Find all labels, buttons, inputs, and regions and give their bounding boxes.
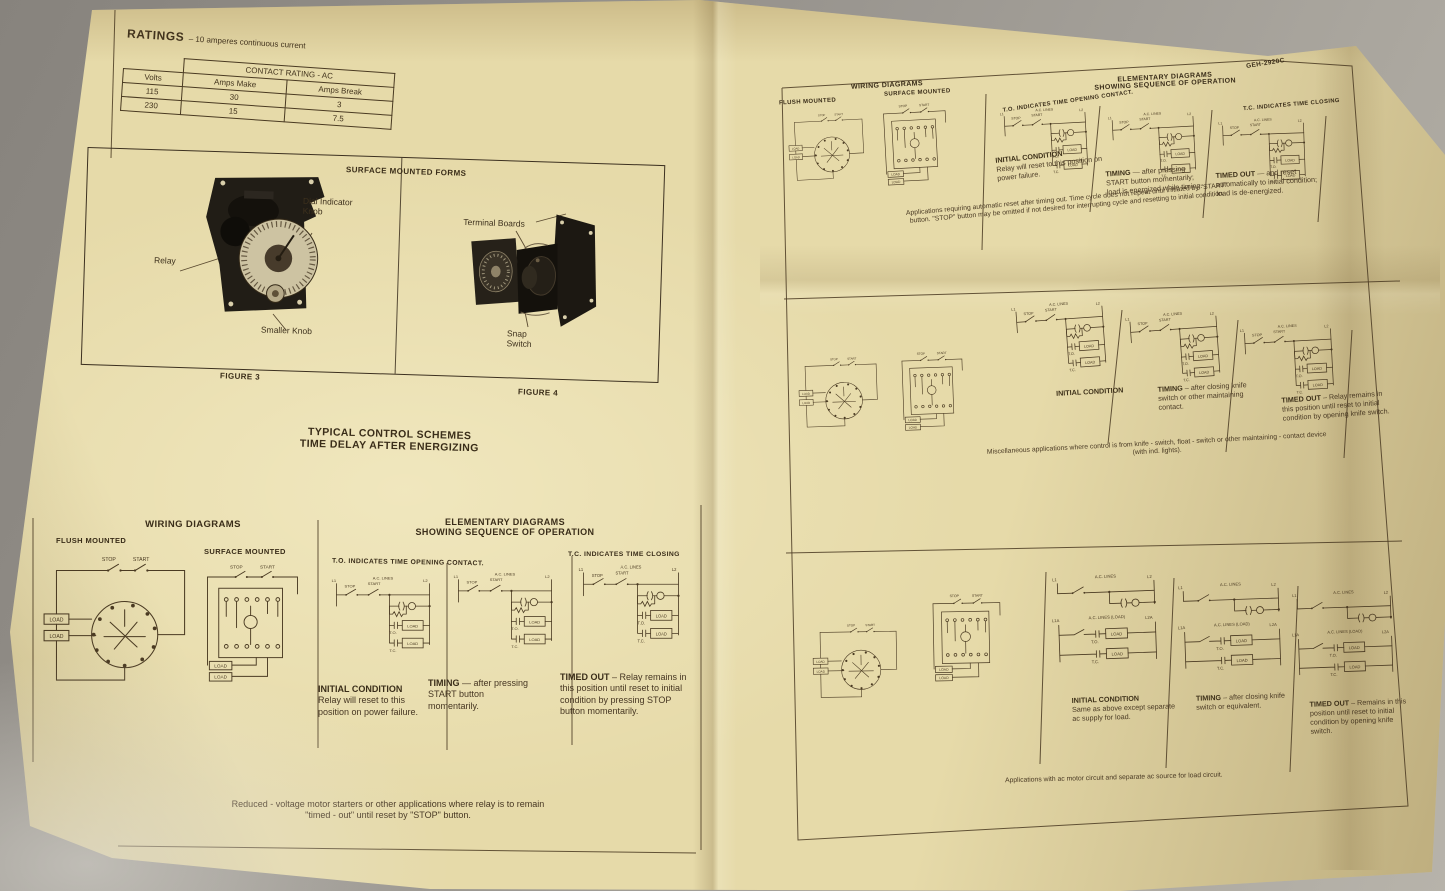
diagram-label-l2: L2	[1187, 112, 1191, 116]
diagram-label-load: LOAD	[817, 670, 826, 674]
instruction-sheet-paper: RATINGS – 10 amperes continuous current …	[0, 0, 1445, 891]
diagram-label-stop: STOP	[1137, 321, 1148, 326]
diagram-label-to: T.O.	[1330, 653, 1338, 658]
diagram-label-stop: STOP	[344, 584, 355, 589]
diagram-label-l2: L2	[423, 578, 428, 583]
wiring-diagram-flush: STOP START LOAD LOAD	[42, 554, 197, 690]
diagram-label-l2: L2	[1271, 582, 1276, 587]
diagram-label-stop: STOP	[917, 352, 926, 356]
figure4-snap-switch-label: Snap Switch	[506, 329, 553, 350]
diagram-label-load: LOAD	[792, 146, 800, 150]
diagram-label-ac-lines-load: A.C. LINES (LOAD)	[1214, 621, 1251, 627]
s3-wiring-diagram-flush: STOP START LOAD LOAD	[811, 621, 904, 704]
diagram-label-load: LOAD	[1112, 651, 1123, 656]
s3-timing-block: TIMING – after closing knife switch or e…	[1196, 690, 1299, 712]
wiring-diagram-surface-svg: STOP START LOAD LOAD	[927, 591, 1007, 684]
diagram-label-start: START	[490, 577, 503, 582]
diagram-label-load: LOAD	[1198, 354, 1209, 359]
diagram-label-load: LOAD	[1285, 158, 1295, 162]
s2-wiring-diagram-surface: STOP START LOAD LOAD	[897, 349, 970, 434]
diagram-label-stop: STOP	[230, 565, 243, 570]
diagram-label-l1: L1	[1052, 577, 1057, 582]
diagram-label-load: LOAD	[214, 663, 227, 668]
diagram-label-l1: L1	[1125, 318, 1129, 322]
timing-block: TIMING — after pressing START button mom…	[428, 678, 534, 712]
elementary-diagram-svg: L1 L2 A.C. LINES STOP START LOAD LOAD T.…	[330, 574, 436, 658]
figures-box: SURFACE MOUNTED FORMS Relay Dial Indicat…	[81, 147, 666, 383]
diagram-label-to: T.O.	[1296, 374, 1303, 378]
elementary-heading-line1: ELEMENTARY DIAGRAMS	[365, 517, 645, 527]
diagram-label-l2: L2	[1384, 590, 1389, 595]
diagram-label-load: LOAD	[939, 676, 949, 680]
diagram-label-tc: T.C.	[1069, 368, 1076, 372]
diagram-label-load: LOAD	[1349, 664, 1360, 669]
diagram-label-start: START	[1159, 318, 1172, 323]
diagram-label-load: LOAD	[908, 418, 917, 422]
diagram-label-l2a: L2A	[1269, 622, 1277, 627]
diagram-label-load: LOAD	[816, 660, 825, 664]
figures-divider	[395, 158, 403, 374]
diagram-label-l1a: L1A	[1292, 632, 1300, 637]
diagram-label-l2: L2	[1096, 302, 1100, 306]
s2-initial-condition-block: INITIAL CONDITION	[1056, 383, 1166, 398]
diagram-label-l1: L1	[1292, 593, 1297, 598]
s3-caption: Applications with ac motor circuit and s…	[1005, 767, 1405, 786]
diagram-label-l1a: L1A	[1052, 618, 1060, 623]
diagram-label-l2: L2	[1324, 324, 1328, 328]
diagram-label-load: LOAD	[802, 401, 810, 405]
diagram-label-load: LOAD	[909, 425, 918, 429]
diagram-label-ac-lines: A.C. LINES	[1278, 324, 1298, 329]
diagram-label-ac-lines: A.C. LINES	[1049, 302, 1069, 307]
diagram-label-start: START	[847, 356, 856, 360]
s3-elementary-diagram-initial: L1 L2 A.C. LINES L1A L2A A.C. LINES (LOA…	[1050, 570, 1163, 674]
wiring-diagram-surface: STOP START LOAD LOAD	[200, 562, 305, 686]
diagram-label-load: LOAD	[792, 155, 800, 159]
diagram-label-ac-lines: A.C. LINES	[373, 576, 394, 581]
elementary-diagram-two-circuit-svg: L1 L2 A.C. LINES L1A L2A A.C. LINES (LOA…	[1050, 570, 1163, 674]
diagram-label-to: T.O.	[389, 630, 396, 635]
s1-wiring-diagram-flush: STOP START LOAD LOAD	[786, 110, 872, 186]
block-title: TIMING	[428, 678, 460, 688]
s1-timed-out-block: TIMED OUT — and reset automatically to i…	[1215, 165, 1332, 198]
diagram-label-start: START	[1273, 330, 1286, 335]
diagram-label-load: LOAD	[1111, 631, 1122, 636]
diagram-label-start: START	[133, 557, 150, 563]
diagram-label-l1: L1	[332, 578, 337, 583]
block-title: INITIAL CONDITION	[318, 684, 422, 695]
s3-timed-out-block: TIMED OUT – Remains in this position unt…	[1309, 696, 1410, 735]
ratings-table: CONTACT RATING - AC Volts Amps Make Amps…	[120, 54, 395, 130]
diagram-label-load: LOAD	[939, 668, 949, 672]
diagram-label-l2a: L2A	[1382, 629, 1390, 634]
figure3-relay-label: Relay	[154, 256, 176, 266]
diagram-label-tc: T.C.	[389, 648, 396, 653]
figure3-smaller-knob-label: Smaller Knob	[261, 326, 341, 338]
diagram-label-to: T.O.	[1216, 646, 1224, 651]
diagram-label-load: LOAD	[407, 623, 418, 628]
diagram-label-load: LOAD	[1236, 638, 1247, 643]
diagram-label-tc: T.C.	[1092, 659, 1100, 664]
diagram-label-stop: STOP	[1023, 311, 1034, 316]
timed-out-block: TIMED OUT – Relay remains in this positi…	[560, 672, 692, 717]
diagram-label-l1a: L1A	[1178, 625, 1186, 630]
elementary-diagram-svg: L1 L2 A.C. LINES STOP START LOAD LOAD T.…	[577, 563, 685, 648]
diagram-label-start: START	[260, 565, 275, 570]
diagram-label-stop: STOP	[466, 580, 477, 585]
s3-initial-condition-block: INITIAL CONDITION Same as above except s…	[1072, 692, 1185, 723]
elementary-diagram-svg: L1 L2 A.C. LINES STOP START LOAD LOAD T.…	[452, 570, 558, 654]
figure3-caption: FIGURE 3	[220, 371, 260, 381]
diagram-label-tc: T.C.	[1217, 665, 1224, 670]
diagram-label-l2: L2	[545, 574, 550, 579]
diagram-label-load: LOAD	[656, 631, 667, 636]
diagram-label-l1: L1	[1011, 308, 1015, 312]
wiring-diagram-flush-svg: STOP START LOAD LOAD	[811, 621, 904, 704]
diagram-label-stop: STOP	[592, 573, 603, 578]
diagram-label-tc: T.C.	[511, 644, 518, 649]
diagram-label-tc: T.C.	[638, 638, 645, 643]
diagram-label-l1: L1	[579, 567, 584, 572]
figure3-photo	[181, 169, 353, 329]
elementary-diagram-timed-out: L1 L2 A.C. LINES STOP START LOAD LOAD T.…	[577, 563, 685, 648]
diagram-label-load: LOAD	[49, 618, 63, 624]
figure4-terminal-boards-label: Terminal Boards	[463, 218, 525, 230]
diagram-label-stop: STOP	[1230, 126, 1240, 130]
diagram-label-start: START	[972, 594, 984, 598]
ratings-title-rest: – 10 amperes continuous current	[188, 34, 305, 50]
s1-caption: Applications requiring automatic reset a…	[902, 182, 1232, 228]
paper-right-crease	[1315, 30, 1385, 870]
diagram-label-ac-lines: A.C. LINES	[1163, 312, 1183, 317]
diagram-label-start: START	[937, 351, 947, 355]
ratings-title-lead: RATINGS	[127, 27, 185, 44]
diagram-label-ac-lines: A.C. LINES	[1035, 107, 1054, 112]
diagram-label-l2: L2	[1210, 312, 1214, 316]
s3-elementary-diagram-timed-out: L1 L2 A.C. LINES L1A L2A A.C. LINES (LOA…	[1290, 586, 1399, 686]
diagram-label-load: LOAD	[802, 392, 810, 396]
diagram-label-ac-lines-load: A.C. LINES (LOAD)	[1327, 628, 1363, 634]
photo-background: RATINGS – 10 amperes continuous current …	[0, 0, 1445, 891]
diagram-label-l2: L2	[672, 567, 677, 572]
s1-tc-note: T.C. INDICATES TIME CLOSING	[1243, 98, 1340, 112]
diagram-label-start: START	[1031, 113, 1043, 118]
s1-wiring-diagram-surface: STOP START LOAD LOAD	[878, 100, 954, 188]
surface-mounted-forms-heading: SURFACE MOUNTED FORMS	[346, 165, 467, 178]
wiring-diagram-flush-svg: STOP START LOAD LOAD	[42, 554, 197, 690]
diagram-label-l1: L1	[1240, 329, 1244, 333]
wiring-diagram-surface-svg: STOP START LOAD LOAD	[878, 100, 954, 188]
control-schemes-title: TYPICAL CONTROL SCHEMES TIME DELAY AFTER…	[262, 425, 518, 456]
diagram-label-stop: STOP	[1011, 116, 1021, 121]
wiring-diagrams-heading: WIRING DIAGRAMS	[118, 519, 268, 530]
s3-elementary-diagram-timing: L1 L2 A.C. LINES L1A L2A A.C. LINES (LOA…	[1176, 578, 1287, 680]
diagram-label-to: T.O.	[1160, 159, 1167, 163]
diagram-label-to: T.O.	[511, 626, 518, 631]
diagram-label-load: LOAD	[1199, 370, 1210, 375]
diagram-label-stop: STOP	[1252, 333, 1263, 338]
surface-mounted-label: SURFACE MOUNTED	[204, 547, 286, 556]
diagram-label-start: START	[368, 581, 381, 586]
paper-center-fold	[693, 0, 737, 891]
diagram-label-load: LOAD	[1313, 383, 1324, 388]
s3-wiring-diagram-surface: STOP START LOAD LOAD	[927, 591, 1007, 684]
diagram-label-ac-lines: A.C. LINES	[1254, 118, 1273, 123]
diagram-label-l2: L2	[1147, 574, 1152, 579]
diagram-label-tc: T.C.	[1183, 378, 1190, 382]
figure3-dial-knob-label: Dial Indicator Knob	[302, 197, 355, 218]
diagram-label-load: LOAD	[1312, 367, 1323, 372]
diagram-label-to: T.O.	[1182, 362, 1189, 366]
diagram-label-l1: L1	[1000, 112, 1004, 116]
diagram-label-load: LOAD	[891, 172, 901, 176]
diagram-label-ac-lines: A.C. LINES	[1220, 581, 1241, 587]
diagram-label-ac-lines-load: A.C. LINES (LOAD)	[1089, 614, 1126, 620]
block-body: Relay will reset to this position on pow…	[318, 695, 418, 716]
elementary-diagram-svg: L1 L2 A.C. LINES STOP START LOAD LOAD T.…	[1123, 307, 1226, 391]
elementary-diagram-timing: L1 L2 A.C. LINES STOP START LOAD LOAD T.…	[452, 570, 558, 654]
elementary-diagrams-heading: ELEMENTARY DIAGRAMS SHOWING SEQUENCE OF …	[365, 517, 645, 537]
s2-timing-block: TIMING – after closing knife switch or o…	[1157, 379, 1266, 412]
diagram-label-start: START	[615, 570, 628, 575]
diagram-label-l2: L2	[1298, 119, 1302, 123]
diagram-label-load: LOAD	[1084, 344, 1095, 349]
diagram-label-start: START	[865, 623, 875, 627]
diagram-label-stop: STOP	[950, 594, 960, 598]
diagram-label-stop: STOP	[102, 557, 117, 563]
s1-surface-mounted-label: SURFACE MOUNTED	[884, 88, 951, 97]
wiring-diagram-surface-svg: STOP START LOAD LOAD	[897, 349, 970, 434]
diagram-label-stop: STOP	[1119, 120, 1129, 125]
elementary-diagram-initial: L1 L2 A.C. LINES STOP START LOAD LOAD T.…	[330, 574, 436, 658]
diagram-label-l1: L1	[1218, 121, 1222, 125]
wiring-diagram-flush-svg: STOP START LOAD LOAD	[786, 110, 872, 186]
diagram-label-stop: STOP	[898, 104, 907, 108]
diagram-label-l2: L2	[1079, 108, 1083, 112]
diagram-label-l1: L1	[1178, 585, 1183, 590]
left-page-caption: Reduced - voltage motor starters or othe…	[218, 799, 558, 822]
diagram-label-load: LOAD	[49, 634, 63, 640]
diagram-label-start: START	[919, 103, 929, 108]
flush-mounted-label: FLUSH MOUNTED	[56, 536, 126, 545]
diagram-label-stop: STOP	[830, 357, 838, 361]
wiring-diagram-flush-svg: STOP START LOAD LOAD	[797, 355, 886, 434]
s2-wiring-diagram-flush: STOP START LOAD LOAD	[797, 355, 886, 434]
diagram-label-load: LOAD	[656, 613, 667, 618]
diagram-label-stop: STOP	[847, 623, 855, 627]
diagram-label-tc: T.C.	[1330, 672, 1337, 677]
diagram-label-ac-lines: A.C. LINES	[1333, 589, 1354, 595]
figure4-caption: FIGURE 4	[518, 387, 558, 397]
block-title: INITIAL CONDITION	[1056, 383, 1166, 398]
diagram-label-l1: L1	[1108, 116, 1112, 120]
diagram-label-load: LOAD	[529, 637, 540, 642]
diagram-label-to: T.O.	[1091, 639, 1099, 644]
diagram-label-l2a: L2A	[1145, 615, 1153, 620]
s1-flush-mounted-label: FLUSH MOUNTED	[779, 98, 836, 107]
diagram-label-ac-lines: A.C. LINES	[621, 565, 642, 570]
elementary-heading-line2: SHOWING SEQUENCE OF OPERATION	[365, 527, 645, 537]
diagram-label-to: T.O.	[1068, 352, 1075, 356]
diagram-label-ac-lines: A.C. LINES	[495, 572, 516, 577]
ratings-cell: 230	[121, 96, 182, 114]
diagram-label-load: LOAD	[529, 619, 540, 624]
diagram-label-start: START	[1045, 308, 1058, 313]
elementary-diagram-two-circuit-svg: L1 L2 A.C. LINES L1A L2A A.C. LINES (LOA…	[1176, 578, 1287, 680]
diagram-label-start: START	[834, 112, 843, 116]
elementary-diagram-svg: L1 L2 A.C. LINES STOP START LOAD LOAD T.…	[1009, 297, 1112, 381]
diagram-label-start: START	[1250, 123, 1262, 127]
tc-note: T.C. INDICATES TIME CLOSING	[568, 551, 680, 558]
diagram-label-load: LOAD	[407, 641, 418, 646]
block-title: TIMED OUT	[560, 672, 610, 682]
diagram-label-ac-lines: A.C. LINES	[1143, 111, 1162, 116]
diagram-label-load: LOAD	[214, 675, 227, 680]
diagram-label-load: LOAD	[892, 180, 902, 184]
diagram-label-load: LOAD	[1085, 360, 1096, 365]
diagram-label-load: LOAD	[1175, 152, 1185, 157]
diagram-label-load: LOAD	[1349, 645, 1360, 650]
wiring-diagram-surface-svg: STOP START LOAD LOAD	[200, 562, 305, 686]
diagram-label-start: START	[1139, 117, 1151, 122]
s2-elementary-diagram-timing: L1 L2 A.C. LINES STOP START LOAD LOAD T.…	[1123, 307, 1226, 391]
ratings-title: RATINGS – 10 amperes continuous current	[127, 25, 306, 54]
s2-caption: Miscellaneous applications where control…	[982, 431, 1332, 466]
elementary-diagram-two-circuit-svg: L1 L2 A.C. LINES L1A L2A A.C. LINES (LOA…	[1290, 586, 1399, 686]
diagram-label-ac-lines: A.C. LINES	[1095, 573, 1117, 579]
diagram-label-stop: STOP	[818, 113, 826, 117]
diagram-label-to: T.O.	[638, 620, 645, 625]
to-note: T.O. INDICATES TIME OPENING CONTACT.	[332, 558, 484, 568]
block-body: Same as above except separate ac supply …	[1072, 701, 1175, 723]
initial-condition-block: INITIAL CONDITION Relay will reset to th…	[318, 684, 422, 718]
diagram-label-load: LOAD	[1236, 658, 1247, 663]
s2-elementary-diagram-initial: L1 L2 A.C. LINES STOP START LOAD LOAD T.…	[1009, 297, 1112, 381]
diagram-label-l1: L1	[454, 574, 459, 579]
